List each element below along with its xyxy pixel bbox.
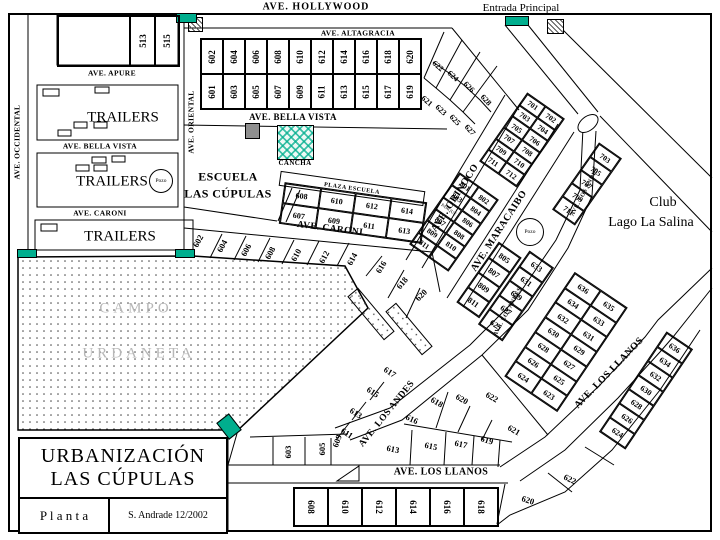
- lot-cell: 612: [362, 488, 396, 526]
- lot-label: 629: [571, 344, 586, 358]
- lot-label: 613: [398, 225, 411, 236]
- lot-cell: 610: [289, 39, 311, 74]
- title-line1: URBANIZACIÓN: [41, 445, 205, 468]
- place-label: ESCUELA: [198, 170, 257, 185]
- lot-label: 633: [591, 314, 606, 328]
- ave-hollywood-label: AVE. HOLLYWOOD: [263, 2, 370, 13]
- lot-label: 617: [383, 85, 393, 99]
- campo-urdaneta-area: [18, 256, 368, 430]
- lot-cell: 602: [201, 39, 223, 74]
- lot-cell: 617: [377, 74, 399, 109]
- lot-label: 603: [283, 446, 293, 459]
- credit-label: S. Andrade 12/2002: [110, 499, 226, 532]
- lot-label: 805: [497, 251, 512, 265]
- plat-map: Pozo Pozo PLAZA ESCUELA AVE. HOLLYWOOD E…: [0, 0, 720, 540]
- map-title: URBANIZACIÓN LAS CÚPULAS: [20, 439, 226, 499]
- street-label: AVE. BELLA VISTA: [249, 112, 337, 122]
- lot-label: 626: [526, 356, 541, 370]
- lot-label: 614: [339, 50, 349, 64]
- lot-cell: 611: [311, 74, 333, 109]
- lot-label: 602: [207, 50, 217, 64]
- lot-label: 608: [295, 190, 308, 201]
- place-label: TRAILERS: [76, 174, 148, 191]
- lot-label: 623: [542, 388, 557, 402]
- lot-label: 624: [516, 370, 531, 384]
- lot-label: 513: [137, 34, 147, 48]
- title-block: URBANIZACIÓN LAS CÚPULAS P l a n t a S. …: [18, 437, 228, 534]
- street-label: AVE. ALTAGRACIA: [321, 29, 395, 38]
- lot-label: 636: [667, 341, 682, 355]
- lot-label: 636: [575, 282, 590, 296]
- lot-label: 619: [405, 85, 415, 99]
- lot-label: 633: [529, 260, 544, 274]
- lot-label: 611: [363, 220, 376, 231]
- lot-cell: 603: [223, 74, 245, 109]
- lot-label: 807: [487, 266, 502, 280]
- lot-cell: 605: [245, 74, 267, 109]
- lot-label: 618: [383, 50, 393, 64]
- row-south-llanos: 608610612614616618: [293, 487, 499, 527]
- gate-icon: [547, 19, 564, 34]
- entrada-principal-label: Entrada Principal: [483, 2, 560, 14]
- lot-cell: 616: [355, 39, 377, 74]
- place-label: CANCHA: [278, 159, 311, 167]
- place-label: TRAILERS: [87, 110, 159, 127]
- lot-label: 614: [401, 205, 414, 216]
- lot-label: 625: [552, 373, 567, 387]
- lot-label: 612: [374, 500, 384, 514]
- lot-label: 608: [273, 50, 283, 64]
- lot-label: 604: [229, 50, 239, 64]
- lot-label: 627: [561, 358, 576, 372]
- lot-label: 603: [229, 85, 239, 99]
- lot-cell: 513: [130, 16, 155, 66]
- lot-cell: 601: [201, 74, 223, 109]
- place-label: TRAILERS: [84, 229, 156, 246]
- place-label: LAS CÚPULAS: [184, 187, 271, 202]
- lot-label: 811: [466, 295, 481, 309]
- lot-label: 703: [598, 151, 612, 165]
- lot-label: 626: [619, 412, 634, 426]
- lot-label: 620: [405, 50, 415, 64]
- gate-marker: [17, 249, 37, 258]
- street-label: AVE. ORIENTAL: [187, 90, 196, 153]
- pozo-label: Pozo: [156, 178, 167, 184]
- place-label: Lago La Salina: [608, 215, 694, 231]
- lot-cell: 608: [294, 488, 328, 526]
- lot-cell: 515: [155, 16, 180, 66]
- lot-label: 607: [273, 85, 283, 99]
- lot-cell: [58, 16, 130, 66]
- street-label: AVE. CARONI: [73, 209, 126, 218]
- lot-label: 632: [556, 312, 571, 326]
- lot-label: 631: [519, 274, 534, 288]
- lot-label: 616: [442, 500, 452, 514]
- lot-cell: 614: [396, 488, 430, 526]
- lot-cell: 609: [289, 74, 311, 109]
- lot-label: 618: [476, 500, 486, 514]
- lot-label: 628: [536, 341, 551, 355]
- gate-marker: [175, 249, 195, 258]
- lot-label: 616: [361, 50, 371, 64]
- block-513-515: 513515: [57, 15, 180, 67]
- lot-cell: 618: [464, 488, 498, 526]
- lot-cell: 619: [399, 74, 421, 109]
- place-label: Club: [649, 195, 676, 211]
- lot-label: 609: [295, 85, 305, 99]
- lot-label: 634: [565, 297, 580, 311]
- street-label: AVE. APURE: [88, 69, 136, 78]
- lot-cell: 614: [333, 39, 355, 74]
- lot-label: 606: [251, 50, 261, 64]
- lot-cell: 607: [267, 74, 289, 109]
- lot-cell: 604: [223, 39, 245, 74]
- pozo-well: Pozo: [149, 169, 173, 193]
- lot-label: 632: [648, 369, 663, 383]
- lot-label: 811: [417, 238, 431, 252]
- lot-label: 601: [207, 85, 217, 99]
- lot-label: 809: [476, 280, 491, 294]
- pozo-well: Pozo: [516, 218, 544, 246]
- lot-label: 635: [601, 300, 616, 314]
- lot-label: 614: [408, 500, 418, 514]
- lot-label: 611: [317, 85, 327, 98]
- lot-cell: 610: [328, 488, 362, 526]
- lot-cell: 618: [377, 39, 399, 74]
- lot-label: 612: [365, 200, 378, 211]
- lot-cell: 620: [399, 39, 421, 74]
- place-label: URDANETA: [82, 346, 195, 363]
- lot-label: 615: [361, 85, 371, 99]
- lot-cell: 615: [355, 74, 377, 109]
- pozo-label: Pozo: [525, 229, 536, 235]
- lot-label: 608: [306, 500, 316, 514]
- street-label: AVE. LOS LLANOS: [394, 467, 488, 478]
- street-label: AVE. BELLA VISTA: [63, 142, 137, 151]
- lot-label: 624: [610, 426, 625, 440]
- lot-label: 612: [317, 50, 327, 64]
- cancha-court: [277, 125, 314, 160]
- street-label: AVE. OCCIDENTAL: [13, 105, 22, 180]
- structure-marker: [245, 123, 260, 139]
- lot-label: 711: [486, 155, 500, 169]
- plan-label: P l a n t a: [20, 499, 110, 532]
- lot-label: 613: [339, 85, 349, 99]
- lot-cell: 606: [245, 39, 267, 74]
- lot-label: 605: [251, 85, 261, 99]
- lot-cell: 616: [430, 488, 464, 526]
- lot-label: 712: [504, 167, 518, 181]
- lot-cell: 608: [267, 39, 289, 74]
- lot-label: 634: [658, 355, 673, 369]
- lot-label: 630: [639, 383, 654, 397]
- lot-label: 610: [295, 50, 305, 64]
- entrance-gate-marker: [505, 16, 529, 26]
- lot-label: 610: [330, 195, 343, 206]
- lot-cell: 613: [333, 74, 355, 109]
- title-line2: LAS CÚPULAS: [51, 468, 196, 491]
- lot-label: 515: [162, 34, 172, 48]
- block-600-grid: 6026046066086106126146166186206016036056…: [200, 38, 422, 110]
- lot-cell: 612: [311, 39, 333, 74]
- place-label: CAMPO: [99, 301, 172, 318]
- lot-label: 628: [629, 398, 644, 412]
- lot-label: 605: [317, 443, 327, 456]
- lot-label: 631: [581, 329, 596, 343]
- lot-label: 630: [546, 326, 561, 340]
- lot-label: 610: [340, 500, 350, 514]
